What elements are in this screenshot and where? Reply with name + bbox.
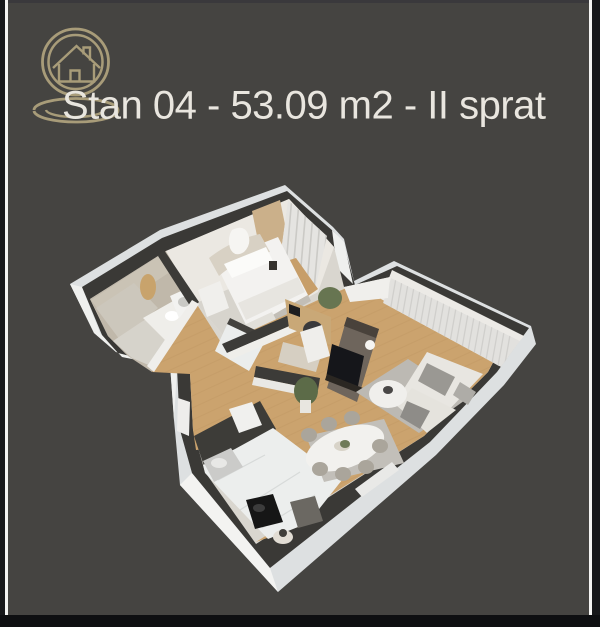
svg-text:Stan 04 - 53.09 m2 - II sprat: Stan 04 - 53.09 m2 - II sprat [62,84,546,128]
